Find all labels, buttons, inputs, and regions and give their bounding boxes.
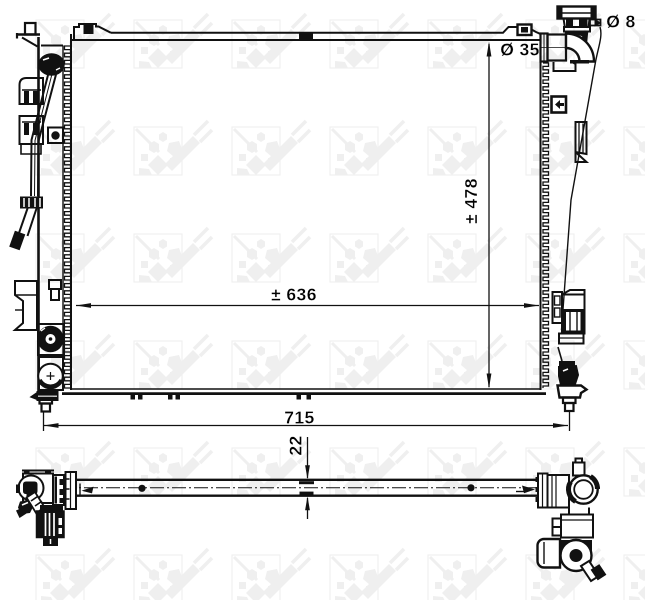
svg-text:22: 22 — [286, 435, 306, 455]
svg-text:± 636: ± 636 — [271, 285, 317, 305]
svg-text:Ø 35: Ø 35 — [500, 40, 540, 60]
svg-text:± 478: ± 478 — [461, 178, 481, 224]
svg-text:Ø 8: Ø 8 — [606, 12, 635, 32]
svg-text:715: 715 — [284, 408, 314, 428]
